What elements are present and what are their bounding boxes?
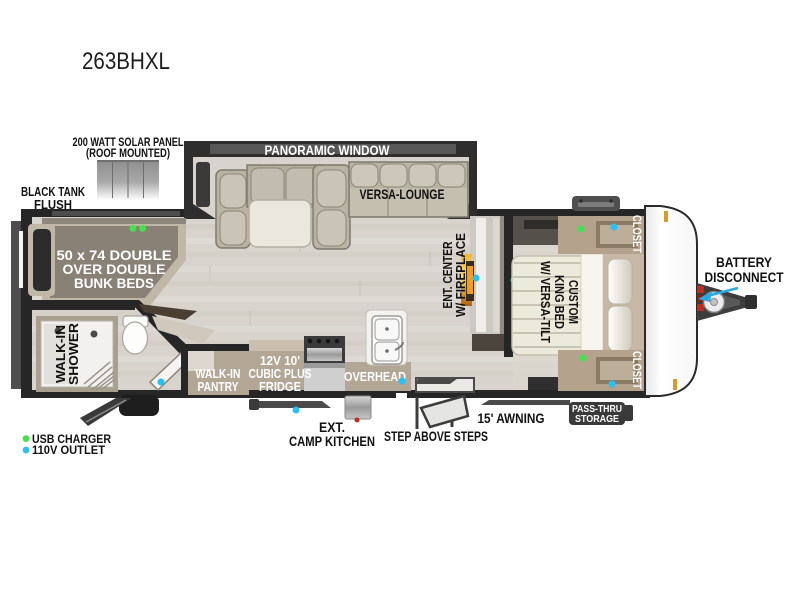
- svg-text:BUNK BEDS: BUNK BEDS: [74, 276, 154, 291]
- svg-text:CUSTOM: CUSTOM: [566, 280, 581, 324]
- svg-text:50 x 74 DOUBLE: 50 x 74 DOUBLE: [57, 248, 172, 263]
- svg-text:FRIDGE: FRIDGE: [259, 379, 301, 394]
- svg-text:OVERHEAD: OVERHEAD: [344, 369, 406, 384]
- svg-text:CLOSET: CLOSET: [630, 215, 642, 253]
- svg-text:BATTERY: BATTERY: [716, 254, 773, 270]
- svg-text:CLOSET: CLOSET: [630, 351, 642, 389]
- svg-text:W/ VERSA-TILT: W/ VERSA-TILT: [538, 261, 553, 343]
- svg-text:OVER DOUBLE: OVER DOUBLE: [63, 262, 166, 277]
- svg-text:DISCONNECT: DISCONNECT: [705, 269, 784, 285]
- svg-text:VERSA-LOUNGE: VERSA-LOUNGE: [360, 186, 445, 202]
- svg-text:110V OUTLET: 110V OUTLET: [32, 443, 106, 457]
- svg-text:KING BED: KING BED: [552, 275, 567, 329]
- svg-text:263BHXL: 263BHXL: [82, 48, 170, 75]
- svg-text:STORAGE: STORAGE: [575, 413, 619, 425]
- svg-text:EXT.: EXT.: [319, 420, 345, 435]
- svg-text:PANTRY: PANTRY: [198, 379, 239, 394]
- svg-text:15' AWNING: 15' AWNING: [478, 411, 545, 426]
- svg-text:W/ FIREPLACE: W/ FIREPLACE: [453, 233, 468, 317]
- svg-text:(ROOF MOUNTED): (ROOF MOUNTED): [86, 148, 170, 160]
- svg-text:STEP ABOVE STEPS: STEP ABOVE STEPS: [384, 429, 488, 444]
- svg-text:CAMP KITCHEN: CAMP KITCHEN: [289, 434, 375, 449]
- svg-text:SHOWER: SHOWER: [66, 322, 81, 385]
- svg-text:PANORAMIC WINDOW: PANORAMIC WINDOW: [265, 143, 390, 158]
